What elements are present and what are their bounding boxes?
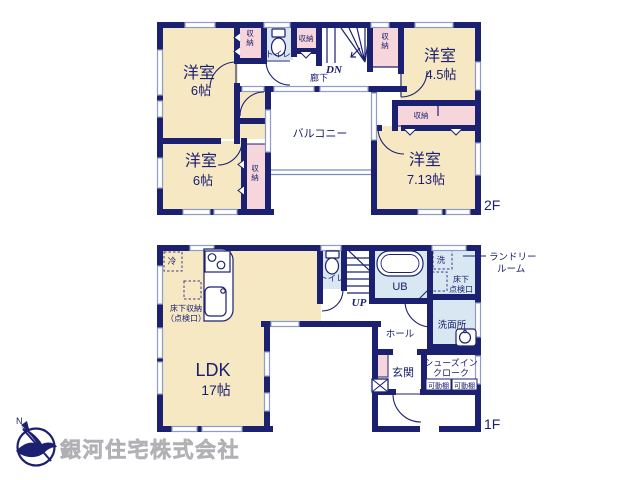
cross-box-icon [372,379,388,392]
underfloor-storage-label-2: （点検口） [166,313,206,323]
window [274,87,314,92]
window [264,23,290,28]
stairs-down-label: DN [325,64,343,76]
closet-label-1: 収納 [246,29,254,47]
window [415,23,453,28]
entrance-label: 玄関 [392,365,414,379]
door-arc-toilet-2f [266,61,290,85]
window [214,210,237,215]
window [158,362,163,394]
room-label-bedroom-bl: 洋室 [185,152,217,170]
shoe-closet-label-2: クローク [433,368,469,378]
door-arc-toilet-1f [322,290,343,311]
bathtub-icon [377,251,423,276]
entrance-cabinet [377,354,388,377]
company-name: 銀河住宅株式会社 [60,438,240,462]
washroom-label: 洗面所 [438,319,467,331]
closet-label-5: 収納 [251,164,259,182]
washbasin-icon [456,329,476,346]
toilet-icon-1f [326,251,340,274]
window [158,101,163,117]
window [271,322,299,327]
door-arc-entrance [393,394,421,422]
closet-label-3: 収納 [381,32,389,50]
washer-label: 洗 [437,255,446,265]
ldk-size: 17帖 [201,382,231,398]
closet-4-2f [397,104,477,126]
room-size-bedroom-tl: 6帖 [191,83,211,98]
room-size-bedroom-tr: 4.5帖 [425,67,456,82]
bifold-mark [300,52,312,58]
fridge-label: 冷 [168,256,177,266]
toilet-label-1f: トイレ [319,273,345,283]
window [418,210,442,215]
window [265,352,270,376]
window [372,93,377,140]
window [371,23,389,28]
toilet-label-2f: トイレ [265,49,291,59]
balcony-railing [271,170,371,175]
window [242,87,264,92]
window [158,158,163,188]
window [476,143,481,175]
closet-walkin-2f [237,89,268,139]
stairs-2f-icon [327,28,368,63]
compass-n-label: N [16,416,23,426]
room-label-bedroom-tr: 洋室 [424,47,456,65]
room-ldk [160,248,321,430]
movable-shelf-label-2: 可動棚 [454,381,475,390]
underfloor-hatch-label-2: 点検口 [449,284,473,294]
floor-plan-drawing: 洋室 6帖 洋室 4.5帖 洋室 6帖 洋室 7.13帖 バルコニー 廊下 トイ… [0,0,640,480]
window [202,427,242,432]
closet-label-2: 収納 [299,33,314,43]
ldk-label: LDK [195,360,230,380]
bird-icon [16,427,57,457]
underfloor-hatch-label-1: 床下 [453,274,469,284]
underfloor-storage-label-1: 床下収納 [170,303,202,313]
shoe-closet-label-1: シューズイン [424,357,478,368]
window [265,393,270,411]
window [158,266,163,304]
floor-plan-page: 洋室 6帖 洋室 4.5帖 洋室 6帖 洋室 7.13帖 バルコニー 廊下 トイ… [0,0,640,480]
stove-icon [205,251,230,272]
stairs-up-label: UP [352,297,367,309]
window [158,50,163,95]
window [432,246,466,251]
movable-shelf-label-1: 可動棚 [428,381,449,390]
window [321,246,341,251]
room-size-bedroom-br: 7.13帖 [407,172,445,187]
laundry-room-label-2: ルーム [497,264,525,275]
window [185,23,215,28]
room-label-bedroom-br: 洋室 [409,151,441,169]
window [446,210,470,215]
room-bedroom-tl [160,25,238,139]
floor-label-2f: 2F [484,197,500,213]
stairs-1f-icon [347,250,371,293]
hall-label: ホール [386,329,415,340]
closet-label-4: 収納 [414,110,429,120]
window [158,328,163,358]
window [172,427,197,432]
room-size-bedroom-bl: 6帖 [193,173,213,188]
balcony-label: バルコニー [293,127,348,140]
floor-label-1f: 1F [484,416,500,432]
laundry-room-label-1: ランドリー [489,252,537,263]
window [476,62,481,90]
room-label-bedroom-tl: 洋室 [183,64,215,82]
kitchen-sink-icon [205,287,226,316]
window [183,210,210,215]
window [266,110,271,152]
unit-bath-label: UB [392,281,407,293]
window [320,87,368,92]
